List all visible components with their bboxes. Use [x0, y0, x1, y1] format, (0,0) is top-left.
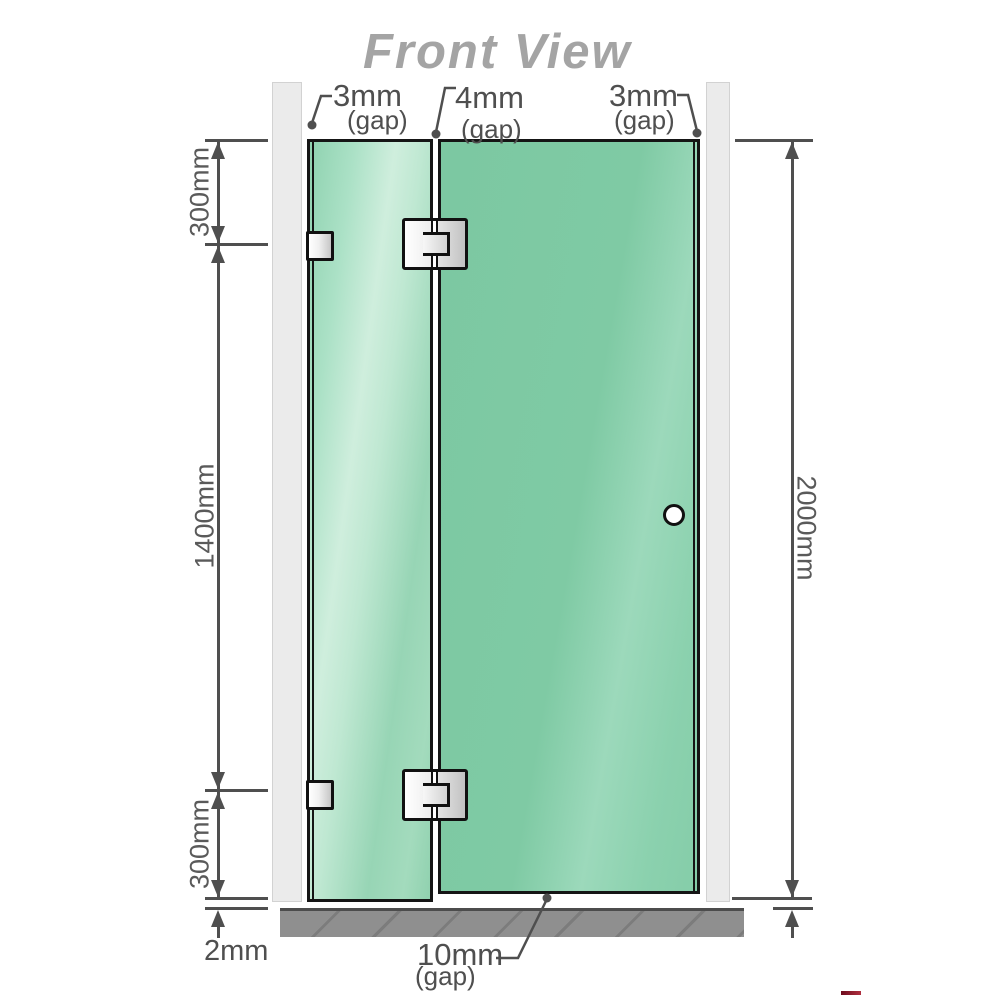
front-view-diagram: Front View 300mm 1 — [0, 0, 1000, 1000]
leader-dot — [543, 894, 552, 903]
bottom-gap-note: (gap) — [415, 963, 476, 989]
wall-bracket-bottom — [306, 780, 334, 810]
ext-line-panel-bottom-left — [205, 897, 268, 900]
door-handle-knob — [663, 504, 685, 526]
hinge-gap-slot — [431, 772, 438, 783]
hinge-gap-slot — [431, 806, 438, 818]
door-glass-panel — [438, 139, 700, 894]
floor-gap-label-2mm: 2mm — [204, 937, 268, 966]
arrow-icon — [211, 772, 225, 789]
wall-bracket-top — [306, 231, 334, 261]
hinge-gap-slot — [431, 221, 438, 232]
glass-hinge-bottom — [402, 769, 468, 821]
gap-label-top-center-value: 4mm — [455, 82, 524, 113]
leader-top-center — [436, 88, 456, 132]
leader-dot — [432, 130, 441, 139]
dim-label-300mm-top: 300mm — [185, 147, 216, 237]
hinge-gap-slot — [431, 255, 438, 267]
leader-top-left — [312, 96, 332, 123]
leader-dot — [693, 129, 702, 138]
gap-label-top-center-note: (gap) — [461, 116, 522, 142]
diagram-title: Front View — [363, 24, 632, 80]
ext-line-panel-top-right — [735, 139, 813, 142]
dim-label-300mm-bottom: 300mm — [185, 799, 216, 889]
door-panel-edge-line — [693, 142, 695, 891]
hinge-clamp-plate — [423, 783, 450, 807]
right-wall — [706, 82, 730, 902]
glass-hinge-top — [402, 218, 468, 270]
arrow-icon — [785, 880, 799, 897]
left-wall — [272, 82, 302, 902]
dim-label-1400mm: 1400mm — [190, 463, 221, 568]
arrow-icon — [785, 910, 799, 927]
gap-label-top-left-note: (gap) — [347, 107, 408, 133]
hinge-clamp-plate — [423, 232, 450, 256]
arrow-icon — [785, 142, 799, 159]
leader-dot — [308, 121, 317, 130]
dim-label-2000mm: 2000mm — [791, 475, 822, 580]
ext-line-panel-bottom-right — [732, 897, 812, 900]
gap-label-top-right-note: (gap) — [614, 107, 675, 133]
arrow-icon — [211, 246, 225, 263]
leader-top-right — [677, 95, 697, 131]
arrow-icon — [211, 910, 225, 927]
logo-fragment — [841, 991, 861, 995]
floor-base — [280, 908, 744, 937]
